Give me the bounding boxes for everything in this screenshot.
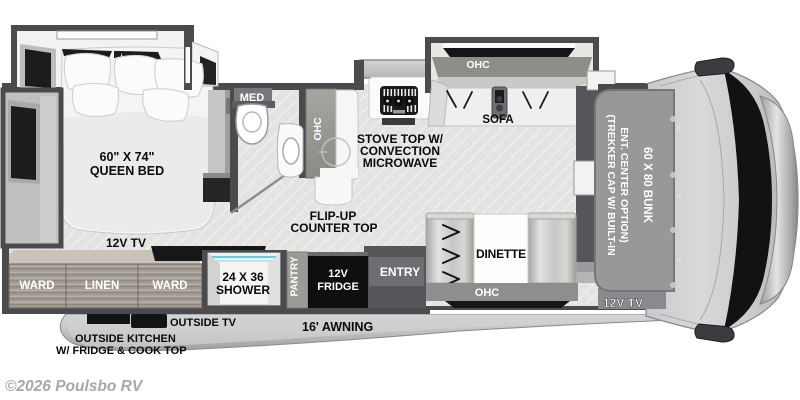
svg-text:COUNTER TOP: COUNTER TOP <box>290 221 377 235</box>
svg-text:W/ FRIDGE & COOK TOP: W/ FRIDGE & COOK TOP <box>56 345 187 357</box>
svg-text:MICROWAVE: MICROWAVE <box>363 156 437 170</box>
svg-text:OHC: OHC <box>312 117 324 141</box>
svg-text:©2026 Poulsbo RV: ©2026 Poulsbo RV <box>5 378 144 395</box>
svg-text:(TREKKER CAP W/ BUILT-IN: (TREKKER CAP W/ BUILT-IN <box>605 114 617 255</box>
svg-text:ENT. CENTER OPTION): ENT. CENTER OPTION) <box>618 127 630 243</box>
svg-text:60 X 80 BUNK: 60 X 80 BUNK <box>641 147 653 224</box>
svg-text:24 X 36: 24 X 36 <box>222 270 264 284</box>
svg-text:LINEN: LINEN <box>85 280 120 292</box>
svg-text:MED: MED <box>240 92 265 104</box>
svg-text:OUTSIDE KITCHEN: OUTSIDE KITCHEN <box>75 333 176 345</box>
svg-text:60" X 74": 60" X 74" <box>100 150 155 164</box>
svg-text:OUTSIDE TV: OUTSIDE TV <box>170 317 237 329</box>
svg-text:WARD: WARD <box>19 280 54 292</box>
svg-text:12V: 12V <box>328 268 348 280</box>
svg-text:SOFA: SOFA <box>482 114 513 126</box>
svg-text:OHC: OHC <box>466 59 490 71</box>
svg-text:OHC: OHC <box>475 287 500 299</box>
svg-text:12V TV: 12V TV <box>106 236 146 250</box>
svg-text:WARD: WARD <box>152 280 187 292</box>
svg-text:QUEEN BED: QUEEN BED <box>90 164 164 178</box>
svg-text:PANTRY: PANTRY <box>290 256 301 296</box>
svg-text:FRIDGE: FRIDGE <box>317 281 359 293</box>
svg-text:ENTRY: ENTRY <box>380 265 420 279</box>
svg-text:16' AWNING: 16' AWNING <box>302 320 373 334</box>
svg-text:12V TV: 12V TV <box>603 296 643 310</box>
svg-text:DINETTE: DINETTE <box>476 247 526 261</box>
svg-text:SHOWER: SHOWER <box>216 283 270 297</box>
